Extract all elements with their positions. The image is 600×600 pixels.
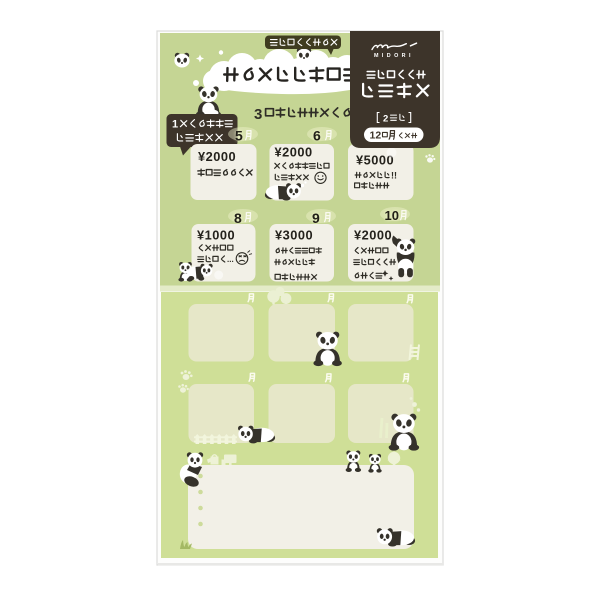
- svg-text:5: 5: [235, 128, 243, 144]
- svg-text:...: ...: [227, 255, 234, 264]
- svg-text:2: 2: [383, 114, 388, 125]
- svg-text:MIDORI: MIDORI: [374, 53, 414, 59]
- svg-text:3: 3: [254, 106, 262, 123]
- svg-text:¥1000: ¥1000: [197, 228, 235, 243]
- svg-text:¥2000: ¥2000: [354, 228, 392, 243]
- svg-text:¥2000: ¥2000: [198, 149, 236, 164]
- svg-text:9: 9: [312, 210, 320, 226]
- svg-text:1: 1: [172, 119, 178, 131]
- svg-text:¥2000: ¥2000: [275, 145, 313, 160]
- svg-text:!!: !!: [391, 171, 397, 181]
- svg-text:10: 10: [385, 208, 399, 223]
- svg-text:6: 6: [313, 128, 321, 144]
- svg-text:12: 12: [370, 130, 382, 142]
- svg-text:8: 8: [234, 210, 242, 226]
- svg-text:¥3000: ¥3000: [275, 228, 313, 243]
